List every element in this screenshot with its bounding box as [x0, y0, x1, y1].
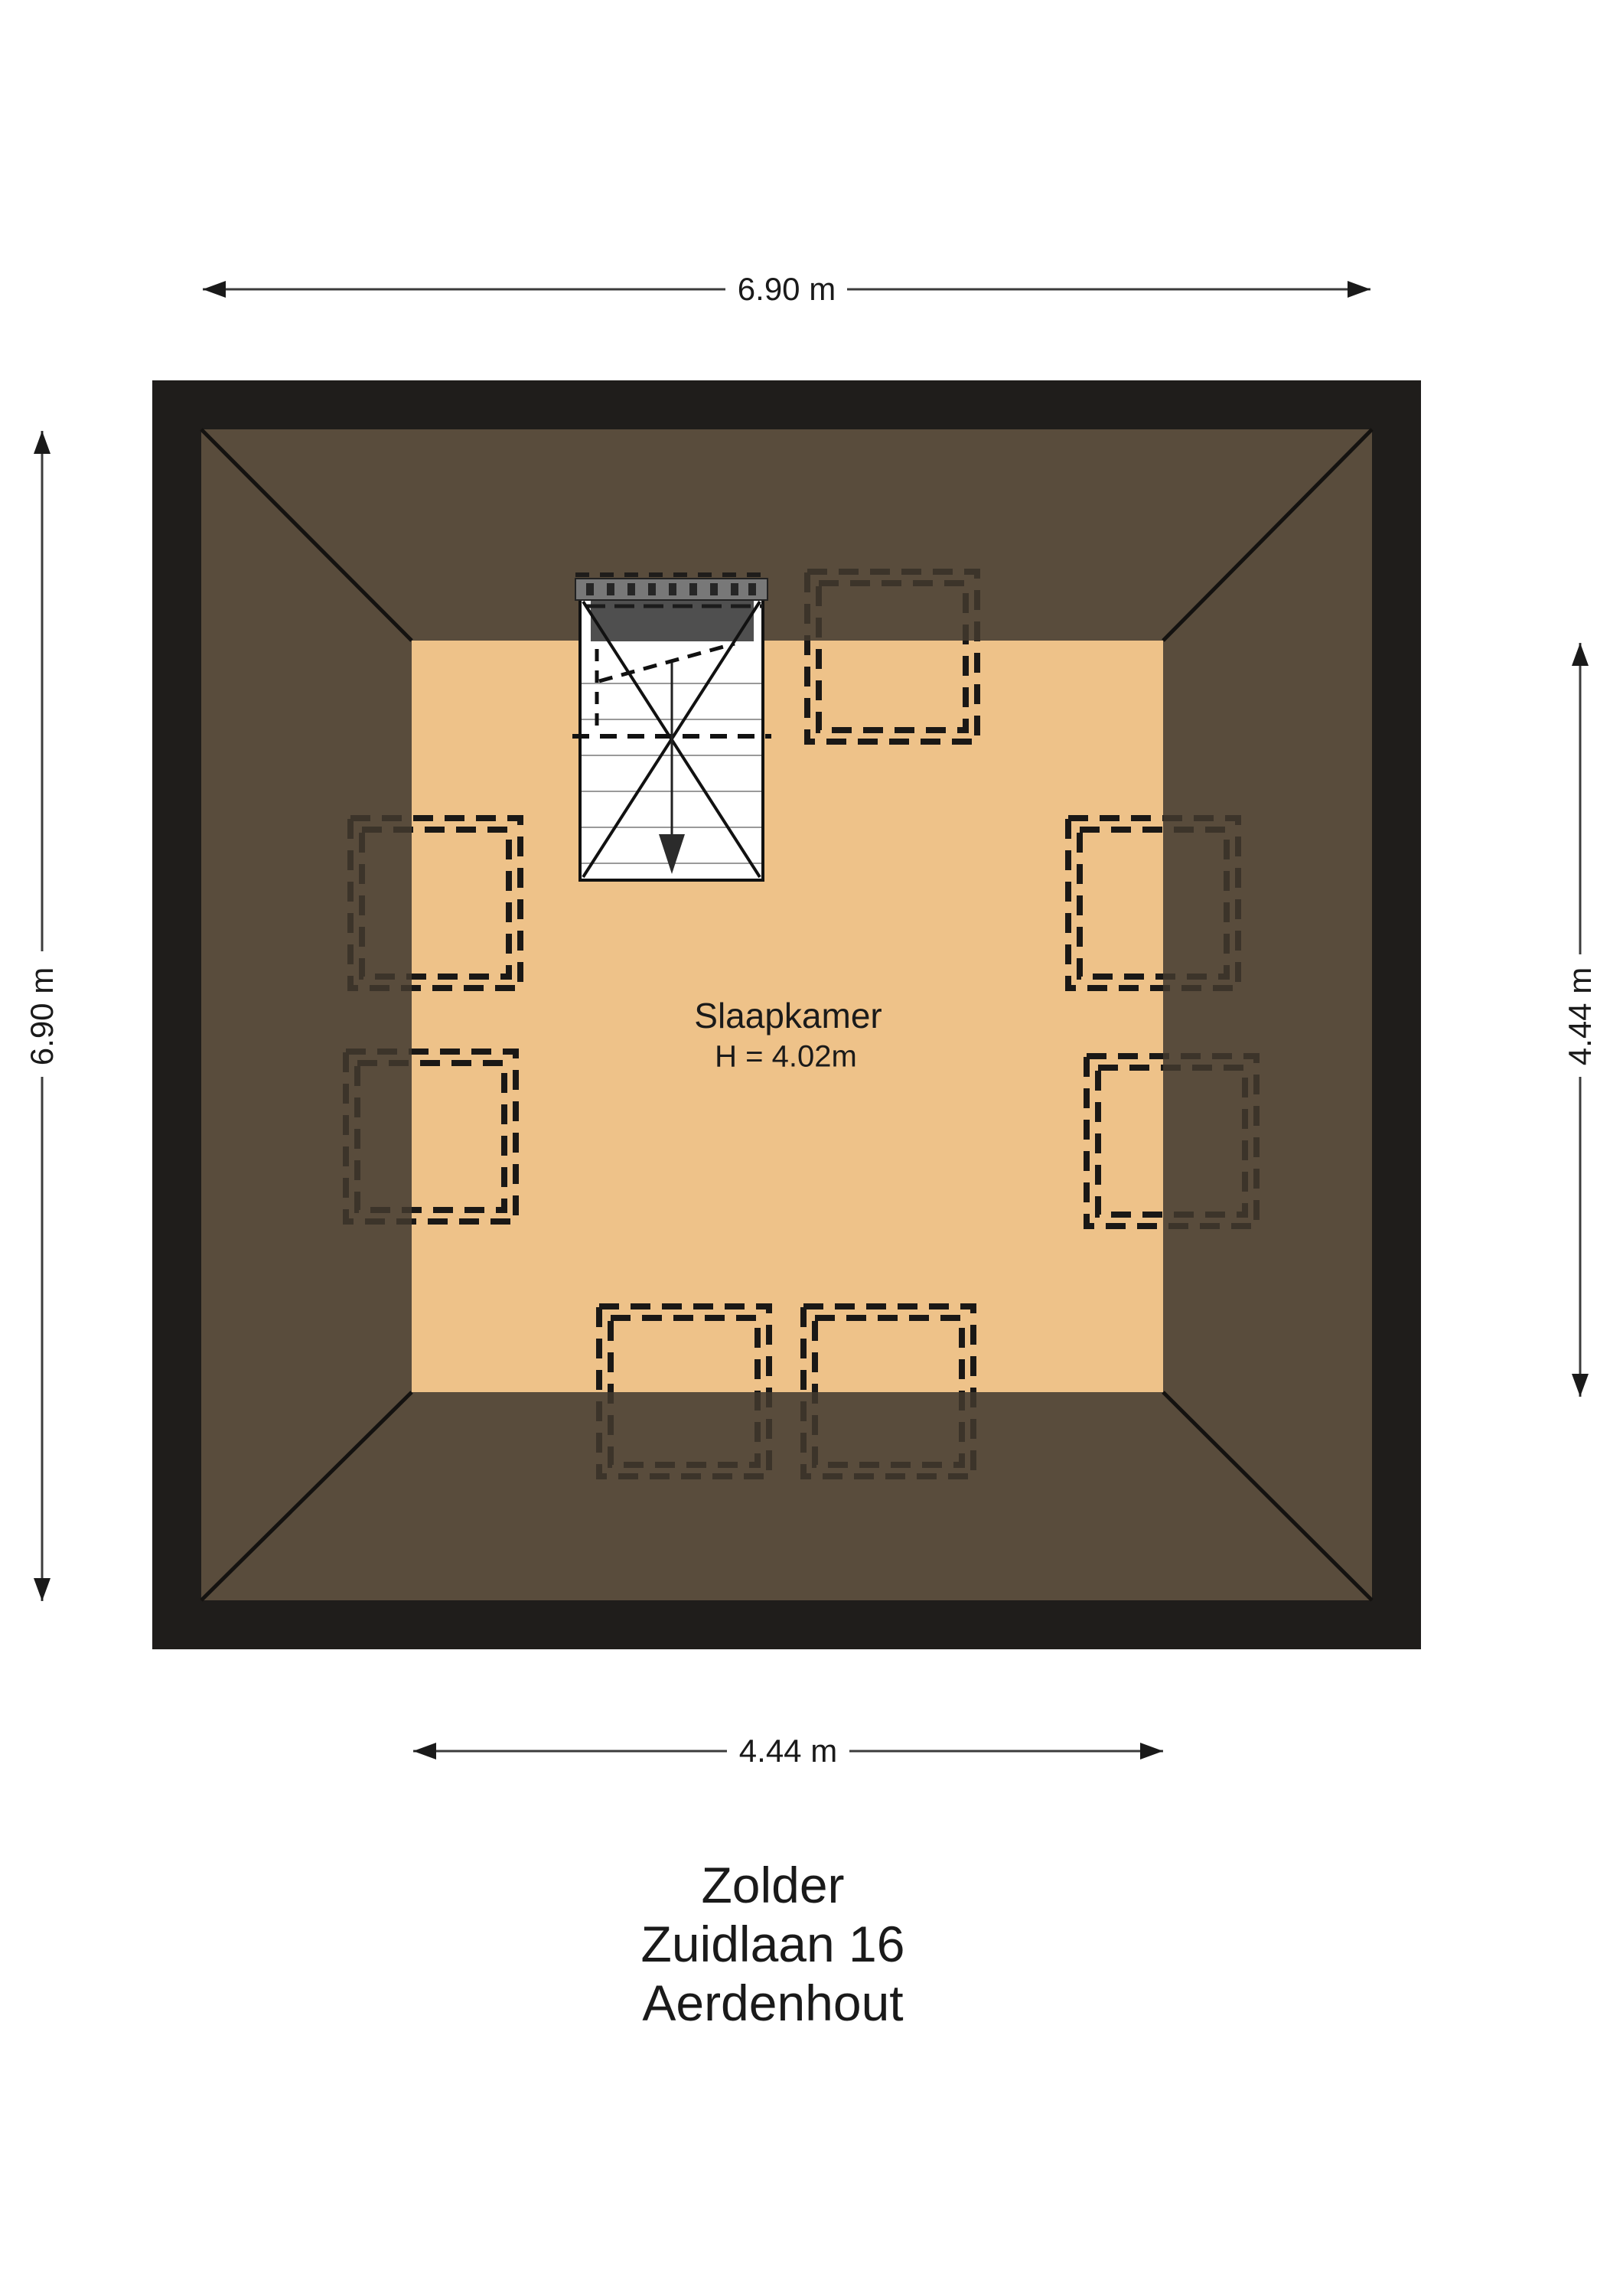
floor-plan-page: 6.90 m 6.90 m 4.44 m 4.44 m Slaapkamer H…	[0, 0, 1623, 2296]
dimension-label-left: 6.90 m	[24, 967, 60, 1065]
dimension-label-bottom: 4.44 m	[739, 1733, 837, 1769]
dimension-label-right: 4.44 m	[1562, 967, 1599, 1065]
plan-title-street: Zuidlaan 16	[641, 1915, 905, 1974]
staircase	[572, 575, 771, 880]
plan-title-city: Aerdenhout	[641, 1974, 905, 2033]
plan-title-block: Zolder Zuidlaan 16 Aerdenhout	[641, 1856, 905, 2033]
dimension-label-top: 6.90 m	[738, 271, 836, 308]
room-name-label: Slaapkamer	[694, 995, 882, 1036]
plan-title-floor: Zolder	[641, 1856, 905, 1915]
room-height-label: H = 4.02m	[715, 1040, 857, 1075]
